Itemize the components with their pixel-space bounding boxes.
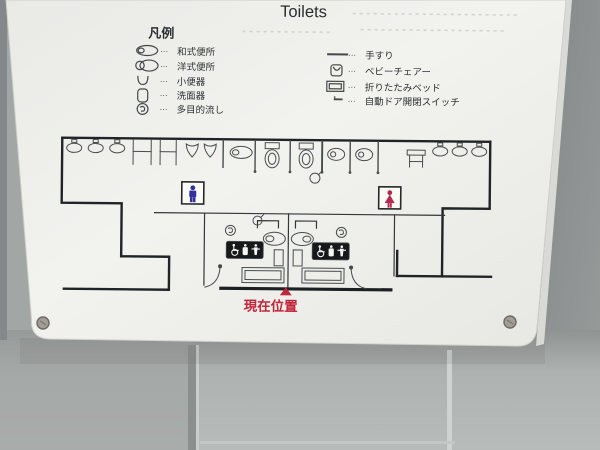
leader-dots: ···	[160, 77, 168, 86]
tile-grout-horizontal	[200, 441, 455, 444]
male-pictogram	[182, 182, 204, 204]
legend-label: 洗面器	[177, 90, 206, 102]
photo-of-toilet-map-sign: Toilets 凡例	[0, 0, 600, 450]
legend-header: 凡例	[148, 26, 174, 41]
leader-dots: ···	[160, 62, 168, 71]
legend-label: 折りたたみベッド	[365, 82, 441, 95]
leader-dots: ···	[348, 66, 356, 75]
leader-dots: ···	[348, 50, 356, 59]
legend-label: 自動ドア開閉スイッチ	[365, 96, 460, 109]
legend-label: 和式便所	[177, 46, 216, 58]
tile-grout-vertical-right	[447, 350, 452, 450]
legend-label: 小便器	[177, 76, 206, 88]
legend-label: 洋式便所	[177, 61, 216, 73]
leader-dots: ···	[160, 91, 168, 100]
current-location-label: 現在位置	[244, 297, 299, 314]
accessibility-badge-right	[312, 243, 349, 260]
screw-bottom-left	[37, 317, 49, 329]
legend-label: 手すり	[365, 50, 394, 62]
female-pictogram	[379, 187, 401, 209]
screw-bottom-right	[504, 316, 516, 328]
wall-left-sliver	[0, 0, 7, 340]
leader-dots: ···	[160, 47, 168, 56]
legend-label: ベビーチェアー	[365, 67, 431, 79]
sign-title: Toilets	[280, 3, 327, 21]
legend-label: 多目的流し	[177, 104, 225, 116]
leader-dots: ···	[160, 105, 168, 114]
accessibility-badge-left	[226, 241, 263, 258]
leader-dots: ···	[348, 82, 356, 91]
legend-row-auto-door-switch: ··· 自動ドア開閉スイッチ	[348, 95, 460, 108]
leader-dots: ···	[348, 96, 356, 105]
